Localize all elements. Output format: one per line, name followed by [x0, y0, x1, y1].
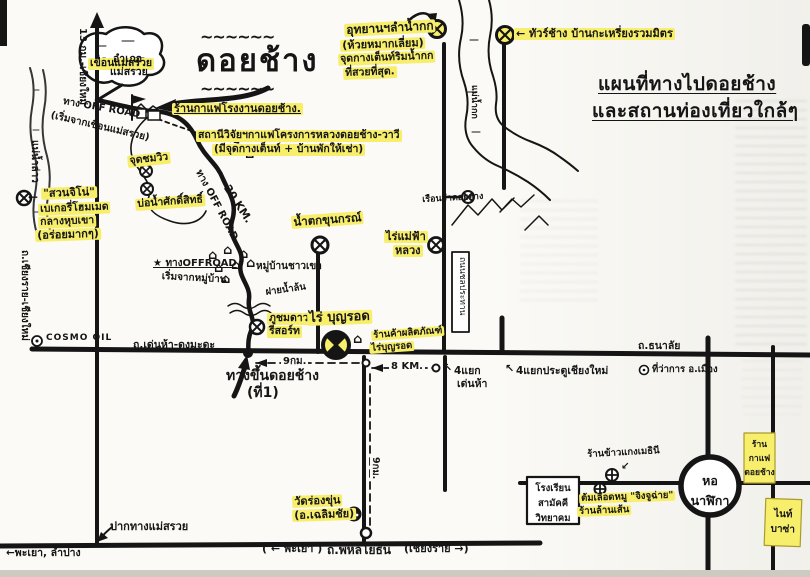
phayao-direction-label: ( ← พะเยา ) — [262, 543, 322, 555]
viewpoint-marker — [140, 165, 152, 177]
phahonyothin-label: ถ.พหลโยธิน — [327, 544, 391, 557]
doi-chang-cafe-label: ร้าน กาแฟ ดอยช้าง — [744, 437, 775, 479]
mae-fah-luang-label-2: หลวง — [393, 245, 423, 257]
chonprathan-road-label: ถนนชลประทาน — [457, 257, 466, 315]
amphoe-label-1: อำเภอ — [113, 54, 142, 66]
rice-curry-arrow: ↙ — [621, 461, 629, 472]
chiangrai-direction-label: (เชียงราย →) — [404, 543, 469, 555]
jino-label-1: "สวนจิโน่" — [41, 186, 97, 200]
phayao-lampang-label: ←พะเยา, ลำปาง — [6, 548, 81, 560]
sacred-well-marker — [141, 183, 153, 195]
clock-line2: นาฬิกา — [682, 491, 738, 511]
samakkhi-school-label: โรงเรียน สามัคคี วิทยาคม — [527, 481, 579, 526]
denha-dongmada-label: ถ.เด่นห้า-ดงมะดะ — [133, 340, 215, 352]
km9-h-label: 9กม. — [281, 356, 308, 367]
research-station-label-1: สถานีวิจัยฯกาแฟโครงการหลวงดอยช้าง-วาวี — [196, 130, 402, 142]
cafe-line3: ดอยช้าง — [744, 465, 775, 479]
cafe-line2: กาแฟ — [744, 451, 775, 465]
phu-chom-dao-label-1: ภูชมดาว — [267, 313, 311, 325]
denha-junction-label-1: 4แยก — [454, 366, 481, 378]
hilltribe-village-label: หมู่บ้านชาวเขา — [256, 261, 322, 272]
scan-mark — [0, 0, 7, 46]
km9-v-label: 9กม. — [370, 455, 380, 481]
map-title-line1: แผนที่ทางไปดอยช้าง — [598, 74, 776, 95]
clock-tower-label: หอ นาฬิกา — [682, 471, 738, 511]
way-up-label-1: ทางขึ้นดอยช้าง — [226, 369, 319, 384]
district-office-label: ที่ว่าการ อ.เมือง — [652, 365, 718, 375]
phu-chom-dao-label-2: รีสอร์ท — [267, 326, 302, 338]
phu-chom-dao-marker — [250, 320, 264, 334]
elephant-tour-label: ← ทัวร์ช้าง บ้านกะเหรี่ยงรวมมิตร — [514, 28, 675, 40]
gas-station-icon — [32, 336, 42, 346]
boon-rawd-marker — [323, 332, 349, 358]
boon-rawd-label: ไร่ บุญรอด — [307, 310, 372, 327]
mae-lao-river-label: แม่น้ำลาว — [29, 140, 40, 183]
nb-line2: บาซ่า — [764, 521, 801, 537]
coffee-factory-label: ร้านกาแฟโรงงานดอยช้าง. — [172, 103, 303, 115]
jino-arrow: ← — [28, 191, 38, 204]
junction-blob — [243, 348, 253, 358]
mae-fah-luang-marker — [429, 238, 444, 253]
denha-junction-label-2: เด่นห้า — [457, 379, 487, 391]
mae-fah-luang-label-1: ไร่แม่ฟ้า — [384, 231, 428, 243]
cm-gate-junction-label: 4แยกประตูเชียงใหม่ — [516, 366, 608, 378]
elephant-tour-marker — [497, 27, 514, 44]
offroad-start-label-1: ★ ทางOFFROAD — [153, 258, 237, 269]
village-house-icon: ⌂ — [223, 244, 232, 258]
school-line2: สามัคคี — [527, 496, 579, 511]
pak-thang-label: ปากทางแม่สรวย — [110, 521, 188, 533]
school-line3: วิทยาคม — [527, 511, 579, 526]
amphoe-label-2: แม่สรวย — [110, 67, 148, 79]
cafe-line1: ร้าน — [744, 437, 775, 451]
scan-bottom-edge — [0, 570, 810, 577]
kok-park-label-4: ที่สวยที่สุด. — [343, 66, 397, 79]
thanalai-road-label: ถ.ธนาลัย — [638, 341, 680, 353]
doi-chang-headline: ดอยช้าง — [196, 44, 319, 78]
squiggle-bottom: ~~~~~~ — [200, 80, 274, 98]
road-118-label: ถ.เชียงราย-เชียงใหม่ — [19, 250, 30, 341]
map-title-line2: และสถานท่องเที่ยวใกล้ๆ — [592, 101, 799, 122]
research-station-label-2: (มีจุดกางเต็นท์ + บ้านพักให้เช่า) — [212, 144, 365, 156]
scan-mark — [802, 24, 810, 66]
khun-korn-marker — [312, 237, 328, 253]
village-house-icon: ⌂ — [246, 257, 255, 271]
kok-river-label: แม่น้ำกก — [468, 85, 478, 119]
rice-curry-marker — [606, 469, 618, 481]
night-bazaar-label: ไนท์ บาซ่า — [764, 506, 801, 537]
to-chiang-mai-label: 13 กม.-เชียงใหม่ — [77, 28, 88, 105]
jino-label-4: (อร่อยมากๆ) — [35, 228, 101, 242]
shop-house-icon: ⌂ — [353, 333, 362, 347]
denha-junction-arrow: ↖ — [443, 362, 452, 374]
district-office-icon — [640, 366, 649, 375]
school-line1: โรงเรียน — [527, 481, 579, 496]
nb-line1: ไนท์ — [765, 506, 802, 522]
way-up-label-2: (ที่1) — [247, 386, 279, 401]
clock-line1: หอ — [682, 471, 738, 491]
km8-label: 8 KM. — [389, 361, 425, 372]
hand-drawn-doi-chang-map: แผนที่ทางไปดอยช้าง และสถานท่องเที่ยวใกล้… — [0, 0, 810, 577]
cosmo-oil-label: COSMO OIL — [46, 334, 112, 344]
cm-gate-arrow: ↖ — [505, 363, 514, 375]
wat-rong-khun-label-2: (อ.เฉลิมชัย) — [292, 508, 356, 522]
wat-rong-khun-label-1: วัดร่องขุ่น — [292, 494, 343, 508]
